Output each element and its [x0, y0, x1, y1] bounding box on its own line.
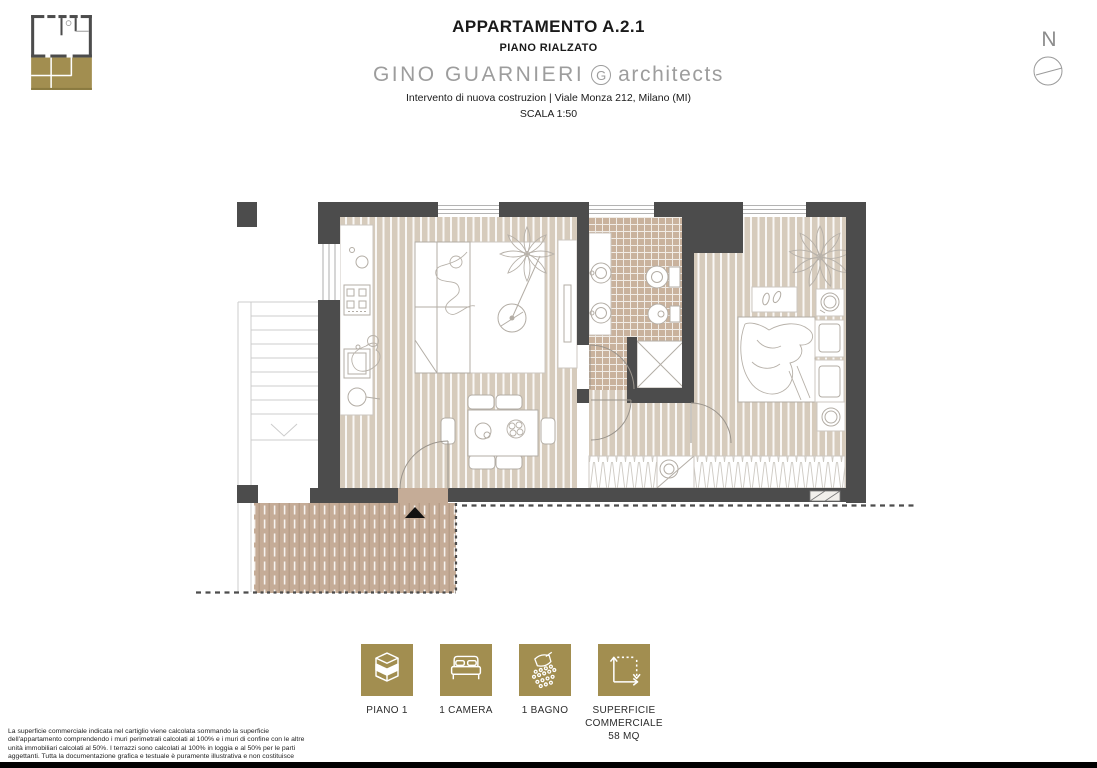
side-table-top [816, 289, 844, 316]
toilet [646, 266, 680, 288]
shower-wall [637, 388, 694, 403]
vanity [589, 233, 611, 335]
entry-threshold [398, 488, 448, 503]
window-living [438, 202, 499, 217]
wardrobe-bedroom [694, 456, 845, 488]
drawing-sheet: APPARTAMENTO A.2.1 PIANO RIALZATO GINO G… [0, 0, 1097, 768]
shower [637, 341, 684, 388]
vent-grille [810, 491, 840, 501]
wall-pillar-bottom [237, 485, 258, 503]
window-bathroom [589, 202, 654, 217]
terrace-floor [254, 503, 456, 593]
nightstand-column [815, 320, 844, 402]
shower-icon [519, 644, 571, 696]
legend-item-bedrooms: 1 CAMERA [440, 644, 492, 696]
legend-item-area: SUPERFICIE COMMERCIALE 58 MQ [598, 644, 650, 696]
side-table-bottom [817, 402, 845, 431]
wall-pillar-top [237, 202, 257, 227]
floor-stack-icon [361, 644, 413, 696]
bottom-bar [0, 762, 1097, 768]
wardrobe-hall [589, 456, 657, 488]
bed-icon [440, 644, 492, 696]
bed [738, 317, 815, 402]
duct-block [694, 217, 743, 253]
legend: PIANO 1 1 CAMERA [361, 644, 650, 696]
closet-corner [657, 456, 694, 488]
radiator [558, 240, 577, 368]
window-side [318, 244, 340, 300]
stair-direction-arrow [271, 424, 297, 436]
shower-wall [627, 337, 637, 403]
bidet [648, 304, 680, 324]
window-bedroom [743, 202, 806, 217]
legend-item-bathrooms: 1 BAGNO [519, 644, 571, 696]
bedroom-rug [752, 287, 797, 312]
area-dimensions-icon [598, 644, 650, 696]
legend-label: SUPERFICIE COMMERCIALE 58 MQ [578, 704, 670, 743]
wardrobes [589, 456, 845, 488]
legend-item-floor: PIANO 1 [361, 644, 413, 696]
